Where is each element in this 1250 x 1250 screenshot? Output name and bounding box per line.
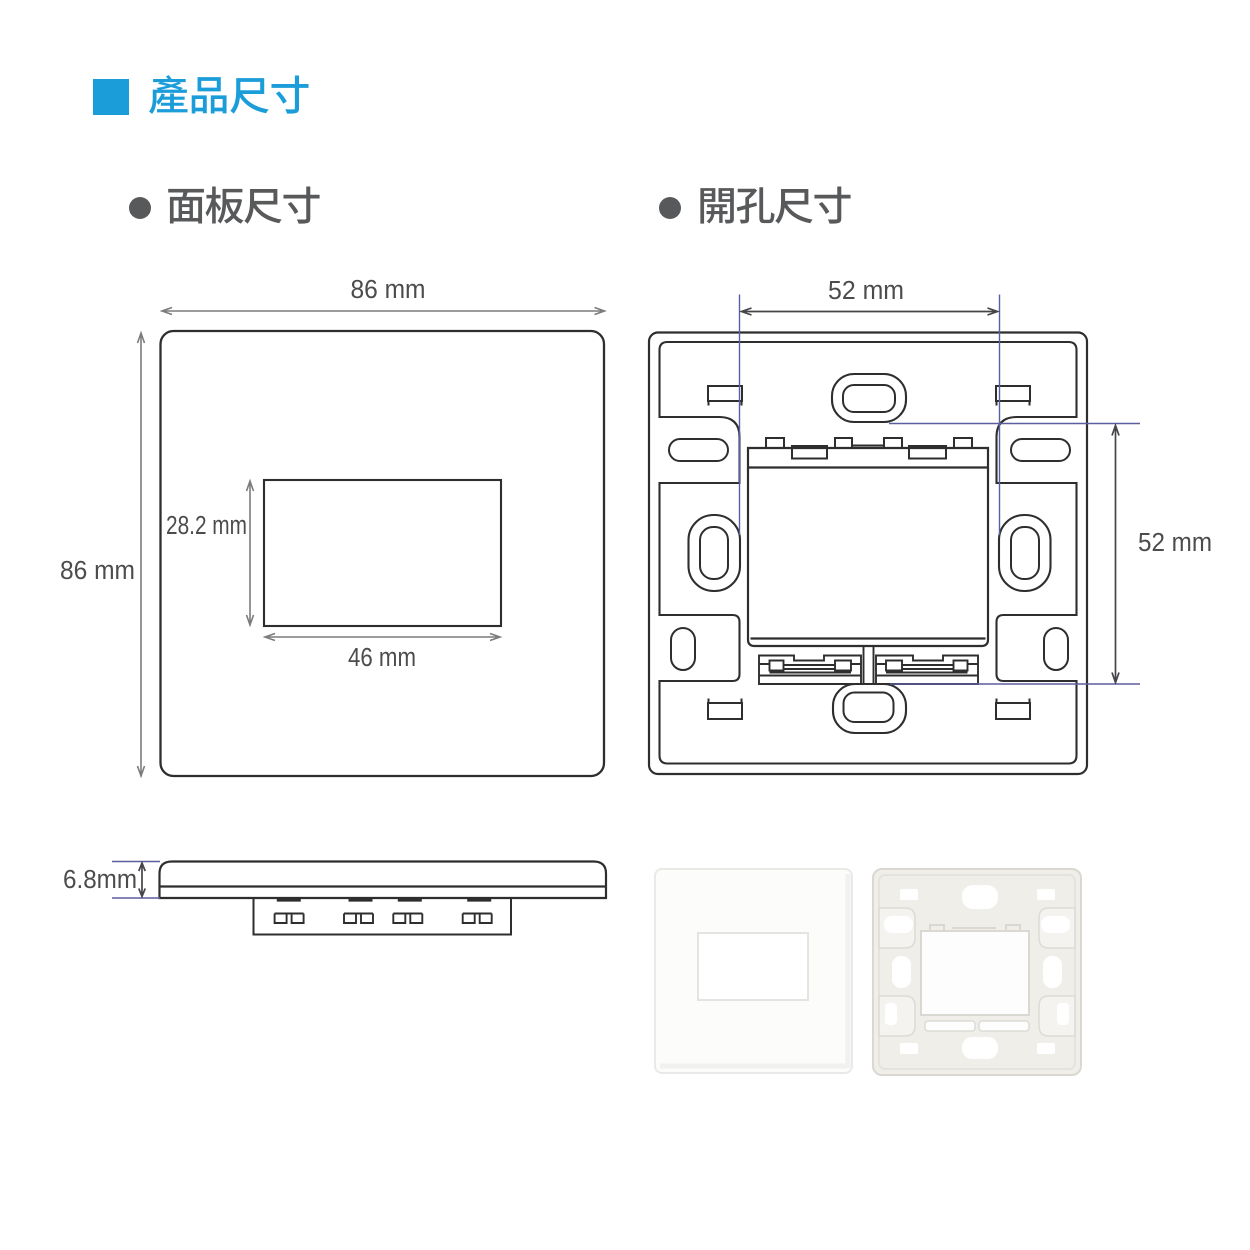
svg-text:86 mm: 86 mm: [351, 276, 426, 304]
svg-text:52 mm: 52 mm: [1138, 529, 1212, 557]
svg-text:46 mm: 46 mm: [348, 644, 416, 672]
svg-text:28.2 mm: 28.2 mm: [166, 512, 247, 540]
svg-text:52 mm: 52 mm: [828, 277, 904, 305]
svg-text:86 mm: 86 mm: [60, 557, 135, 585]
svg-text:6.8mm: 6.8mm: [63, 866, 137, 894]
